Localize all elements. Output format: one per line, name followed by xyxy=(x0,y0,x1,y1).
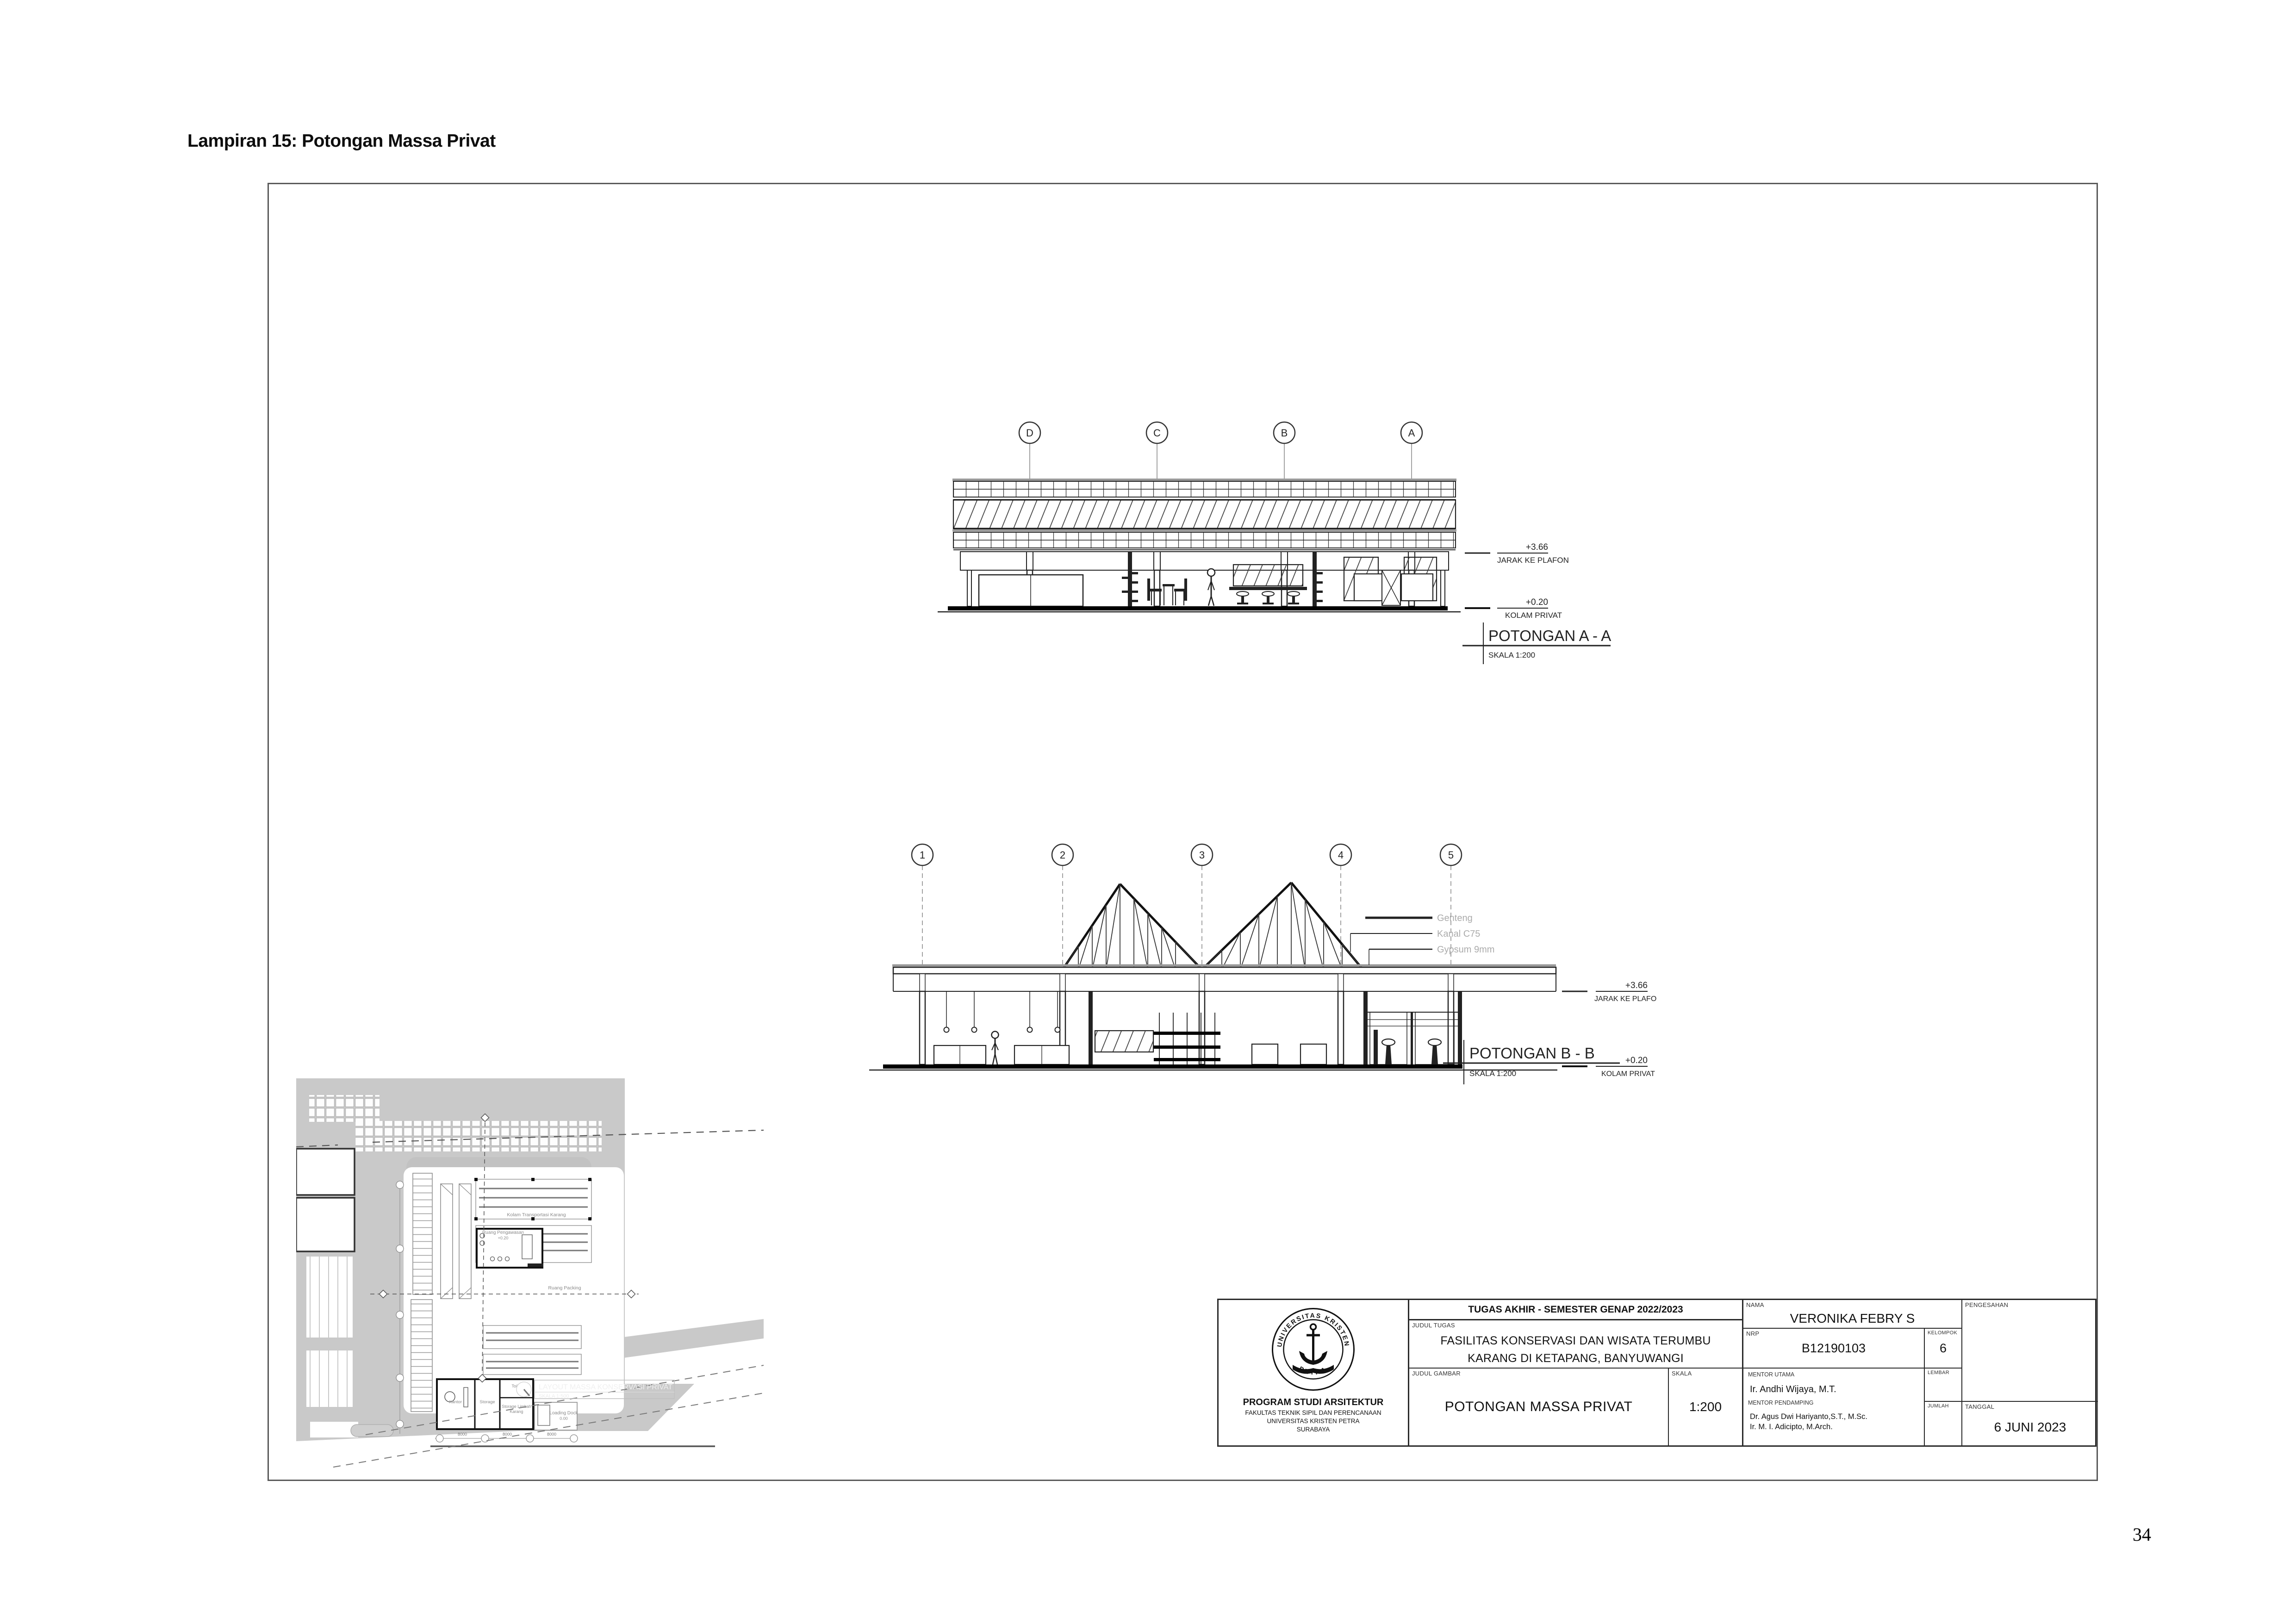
grid-markers-aa xyxy=(1019,422,1422,480)
drawing-title-bb: POTONGAN B - B SKALA 1:200 xyxy=(1443,1040,1620,1084)
room-label: Loading Dock xyxy=(549,1411,578,1416)
level-value: +0.20 xyxy=(1526,597,1548,607)
dim-8000: 8000 xyxy=(503,1432,512,1437)
room-label: Ruang Packing xyxy=(548,1285,581,1291)
grid-label: 1 xyxy=(920,849,925,861)
room-label: Storage xyxy=(479,1400,495,1405)
mentor-pendamping-label: MENTOR PENDAMPING xyxy=(1748,1400,1919,1406)
grid-label: 2 xyxy=(1060,849,1065,861)
section-title: POTONGAN B - B xyxy=(1469,1045,1595,1062)
institution-program: PROGRAM STUDI ARSITEKTUR xyxy=(1219,1397,1408,1408)
room-label: Karang xyxy=(510,1409,523,1414)
skala-cell: SKALA 1:200 xyxy=(1668,1369,1742,1445)
pengesahan-cell: PENGESAHAN xyxy=(1961,1300,2098,1402)
judul-tugas-cell: JUDUL TUGAS FASILITAS KONSERVASI DAN WIS… xyxy=(1409,1320,1742,1369)
room-label: Ruang Pengawasan xyxy=(482,1230,524,1235)
grid-label: C xyxy=(1153,427,1161,439)
drawing-title-aa: POTONGAN A - A SKALA 1:200 xyxy=(1462,622,1611,664)
grid-label: 4 xyxy=(1338,849,1344,861)
section-scale: SKALA 1:200 xyxy=(1488,651,1535,660)
mentor-utama-label: MENTOR UTAMA xyxy=(1748,1371,1919,1378)
mentor-pendamping-value1: Dr. Agus Dwi Hariyanto,S.T., M.Sc. xyxy=(1750,1412,1919,1421)
mentor-utama-value: Ir. Andhi Wijaya, M.T. xyxy=(1750,1384,1919,1395)
judul-tugas-label: JUDUL TUGAS xyxy=(1412,1322,1455,1329)
nama-cell: NAMA VERONIKA FEBRY S xyxy=(1742,1300,1961,1329)
floor-aa xyxy=(938,606,1461,612)
level-label: KOLAM PRIVAT xyxy=(1505,611,1562,620)
judul-tugas-line1: FASILITAS KONSERVASI DAN WISATA TERUMBU xyxy=(1409,1332,1742,1350)
columns-bb xyxy=(920,991,1454,1064)
jumlah-cell: JUMLAH xyxy=(1924,1402,1961,1445)
nrp-label: NRP xyxy=(1746,1330,1759,1337)
dim-8000: 8000 xyxy=(547,1432,556,1437)
kelompok-cell: KELOMPOK 6 xyxy=(1924,1329,1961,1369)
lembar-label: LEMBAR xyxy=(1928,1370,1949,1375)
institution-cell: UNIVERSITAS KRISTEN PETRA PROGRAM STUDI … xyxy=(1219,1300,1409,1445)
section-scale: SKALA 1:200 xyxy=(1469,1069,1516,1078)
level-value: +0.20 xyxy=(1625,1056,1648,1065)
university-petra-logo-icon: UNIVERSITAS KRISTEN PETRA xyxy=(1270,1307,1356,1392)
mentor-cell: MENTOR UTAMA Ir. Andhi Wijaya, M.T. MENT… xyxy=(1742,1369,1924,1445)
shelving-unit xyxy=(1154,1013,1220,1064)
mentor-pendamping-value2: Ir. M. I. Adicipto, M.Arch. xyxy=(1750,1423,1919,1431)
lembar-cell: LEMBAR xyxy=(1924,1369,1961,1402)
level-value: +3.66 xyxy=(1625,981,1648,990)
nama-value: VERONIKA FEBRY S xyxy=(1743,1300,1961,1332)
judul-tugas-line2: KARANG DI KETAPANG, BANYUWANGI xyxy=(1409,1350,1742,1368)
pengesahan-label: PENGESAHAN xyxy=(1965,1301,2008,1308)
section-bb-drawing: 1 2 3 4 5 xyxy=(861,831,1657,1092)
floor-bb xyxy=(869,1064,1557,1070)
room-level: +0.20 xyxy=(498,1236,509,1240)
section-aa-drawing: D C B A xyxy=(935,412,1657,680)
page-title: Lampiran 15: Potongan Massa Privat xyxy=(187,131,496,151)
institution-kota: SURABAYA xyxy=(1219,1426,1408,1433)
siteplan-caption-title: LAYOUT MASSA KONSERVASI PRIVAT xyxy=(539,1383,672,1391)
level-label: KOLAM PRIVAT xyxy=(1601,1070,1655,1078)
grid-label: 5 xyxy=(1448,849,1454,861)
roof-slab-bb xyxy=(892,965,1556,991)
level-label: JARAK KE PLAFON xyxy=(1594,995,1657,1003)
titleblock-header: TUGAS AKHIR - SEMESTER GENAP 2022/2023 xyxy=(1409,1300,1742,1319)
room-label: Storage Limbah xyxy=(502,1404,531,1409)
tanggal-label: TANGGAL xyxy=(1965,1403,1994,1410)
room-label: Kantor xyxy=(449,1400,462,1405)
skala-value: 1:200 xyxy=(1669,1369,1742,1445)
page-number: 34 xyxy=(2133,1524,2151,1545)
roof-trusses-bb xyxy=(1063,883,1363,970)
nrp-cell: NRP B12190103 xyxy=(1742,1329,1924,1369)
callout-genteng: Genteng xyxy=(1437,913,1473,923)
jumlah-label: JUMLAH xyxy=(1928,1403,1949,1409)
judul-gambar-value: POTONGAN MASSA PRIVAT xyxy=(1409,1369,1668,1445)
roof-assembly-aa xyxy=(952,480,1456,550)
callout-kanal: Kanal C75 xyxy=(1437,929,1480,939)
dimension-floor-aa: +0.20 KOLAM PRIVAT xyxy=(1465,597,1562,620)
grid-label: B xyxy=(1281,427,1288,439)
institution-fakultas: FAKULTAS TEKNIK SIPIL DAN PERENCANAAN xyxy=(1219,1409,1408,1416)
grid-markers-bb xyxy=(912,844,1462,965)
level-value: +3.66 xyxy=(1526,542,1548,552)
pendant-lights xyxy=(944,991,1060,1033)
dimension-plafon-bb: +3.66 JARAK KE PLAFON xyxy=(1562,981,1657,1003)
toilet-room-bb xyxy=(1363,991,1462,1064)
titleblock-header-cell: TUGAS AKHIR - SEMESTER GENAP 2022/2023 xyxy=(1409,1300,1742,1320)
titleblock: UNIVERSITAS KRISTEN PETRA PROGRAM STUDI … xyxy=(1217,1299,2097,1447)
room-level: 0.00 xyxy=(560,1416,568,1421)
nrp-value: B12190103 xyxy=(1743,1329,1924,1368)
kelompok-label: KELOMPOK xyxy=(1928,1330,1957,1336)
section-title: POTONGAN A - A xyxy=(1488,627,1611,644)
skala-label: SKALA xyxy=(1672,1370,1692,1377)
grid-label: 3 xyxy=(1199,849,1205,861)
institution-universitas: UNIVERSITAS KRISTEN PETRA xyxy=(1219,1418,1408,1425)
judul-gambar-cell: JUDUL GAMBAR POTONGAN MASSA PRIVAT xyxy=(1409,1369,1668,1445)
nama-label: NAMA xyxy=(1746,1301,1764,1308)
grid-label: D xyxy=(1026,427,1033,439)
room-label: Kolam Transportasi Karang xyxy=(507,1212,566,1218)
siteplan-drawing: 8000 8000 8000 Kolam Transportasi Karang… xyxy=(296,1078,764,1472)
interior-furniture-bb xyxy=(934,991,1326,1064)
roof-callout-leaders xyxy=(1350,918,1432,965)
dimension-plafon-aa: +3.66 JARAK KE PLAFON xyxy=(1465,542,1569,565)
grid-label: A xyxy=(1408,427,1415,439)
tanggal-cell: TANGGAL 6 JUNI 2023 xyxy=(1961,1402,2098,1445)
callout-gypsum: Gypsum 9mm xyxy=(1437,945,1494,955)
judul-gambar-label: JUDUL GAMBAR xyxy=(1412,1370,1461,1377)
document-page: Lampiran 15: Potongan Massa Privat D C B… xyxy=(0,0,2296,1624)
level-label: JARAK KE PLAFON xyxy=(1497,556,1569,565)
siteplan-caption-scale: SKALA 1:500 xyxy=(539,1394,569,1399)
dim-8000: 8000 xyxy=(458,1432,467,1437)
